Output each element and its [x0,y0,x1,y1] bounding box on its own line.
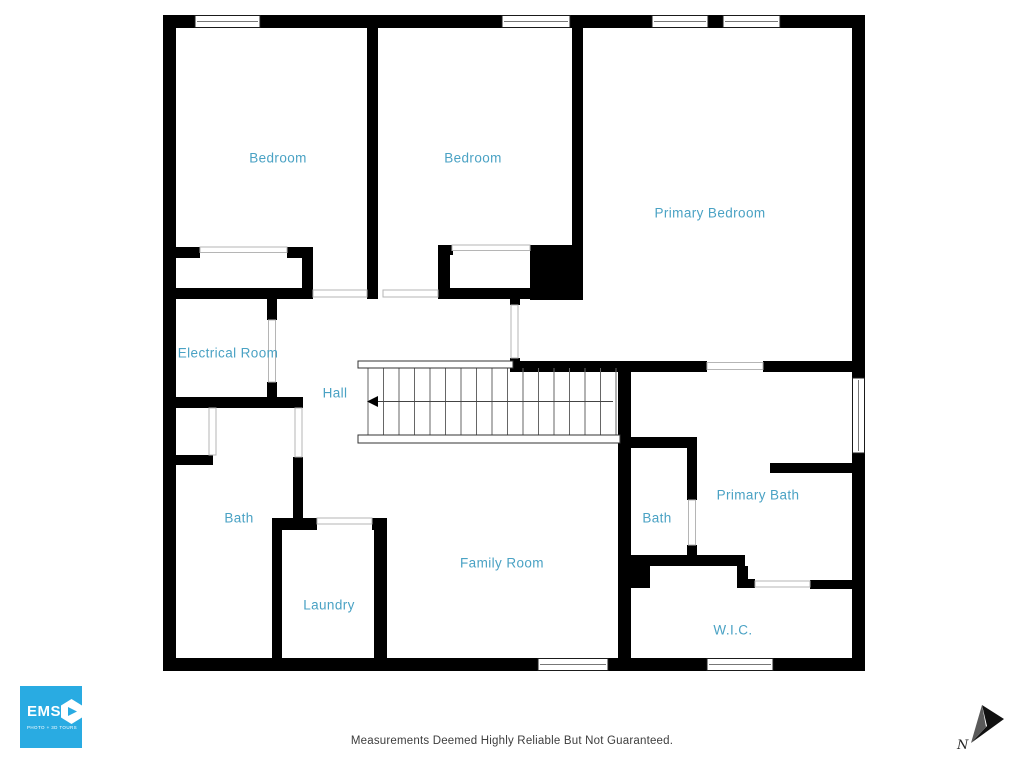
room-label-laundry: Laundry [303,598,355,613]
room-label-bedroom-2: Bedroom [444,151,502,166]
floorplan-drawing [0,0,1024,768]
logo-hexagon-icon [60,698,83,725]
floorplan-canvas: Bedroom Bedroom Primary Bedroom Electric… [0,0,1024,768]
stairs-direction-arrow [367,396,613,407]
stairs [358,361,620,443]
room-label-wic: W.I.C. [713,623,752,638]
ems-logo-text: EMS [27,703,61,720]
north-label: N [957,738,968,753]
room-label-family-room: Family Room [460,556,544,571]
ems-logo-subtext: PHOTO + 3D TOURS [27,725,77,730]
room-label-primary-bath: Primary Bath [717,488,800,503]
room-label-bath-right: Bath [642,511,671,526]
room-label-primary-bedroom: Primary Bedroom [654,206,765,221]
room-label-bath-left: Bath [224,511,253,526]
disclaimer-text: Measurements Deemed Highly Reliable But … [0,735,1024,747]
room-label-bedroom-1: Bedroom [249,151,307,166]
room-label-electrical-room: Electrical Room [178,346,279,361]
windows-layer [195,16,865,671]
room-label-hall: Hall [323,386,348,401]
